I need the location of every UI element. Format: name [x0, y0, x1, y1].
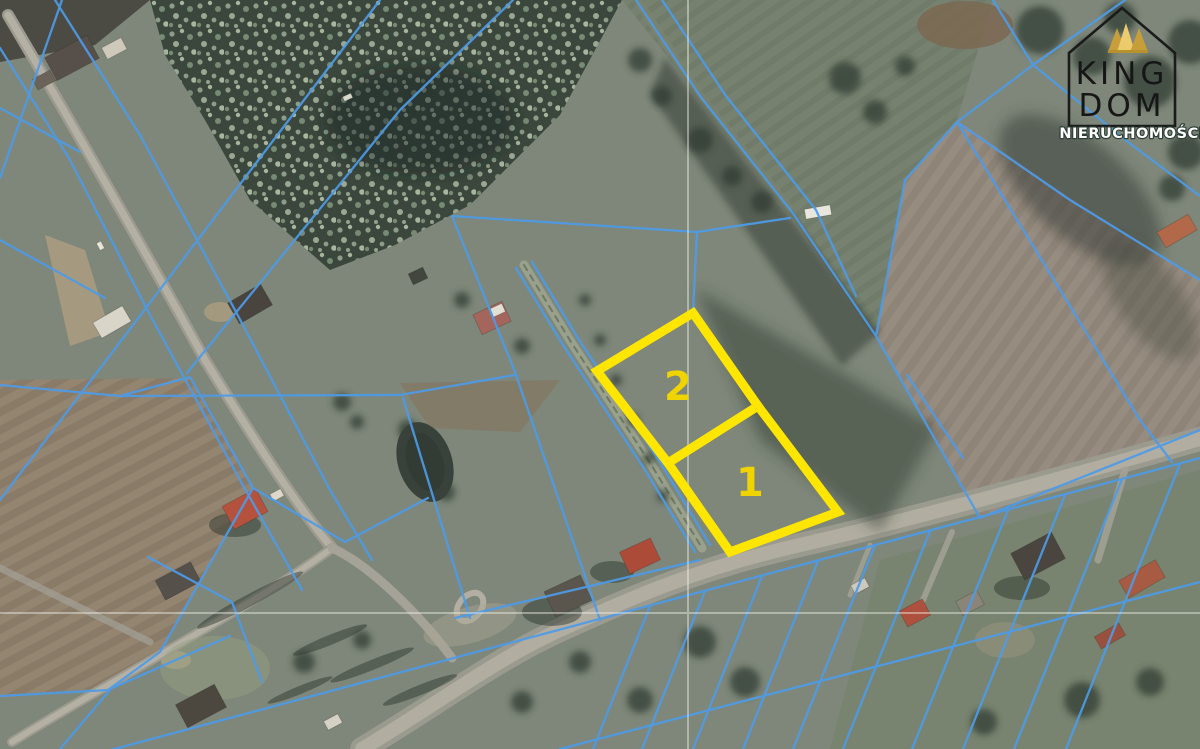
aerial-map: 2 1 KING DOM NIERUCHOMOŚCI	[0, 0, 1200, 749]
logo-subtitle: NIERUCHOMOŚCI	[1059, 124, 1200, 142]
parcel-1-label: 1	[736, 460, 764, 506]
logo-title-line1: KING	[1076, 56, 1169, 92]
logo-title-line2: DOM	[1078, 88, 1165, 124]
parcel-2-label: 2	[664, 364, 692, 410]
forest-shade	[325, 65, 515, 175]
map-canvas: 2 1 KING DOM NIERUCHOMOŚCI	[0, 0, 1200, 749]
